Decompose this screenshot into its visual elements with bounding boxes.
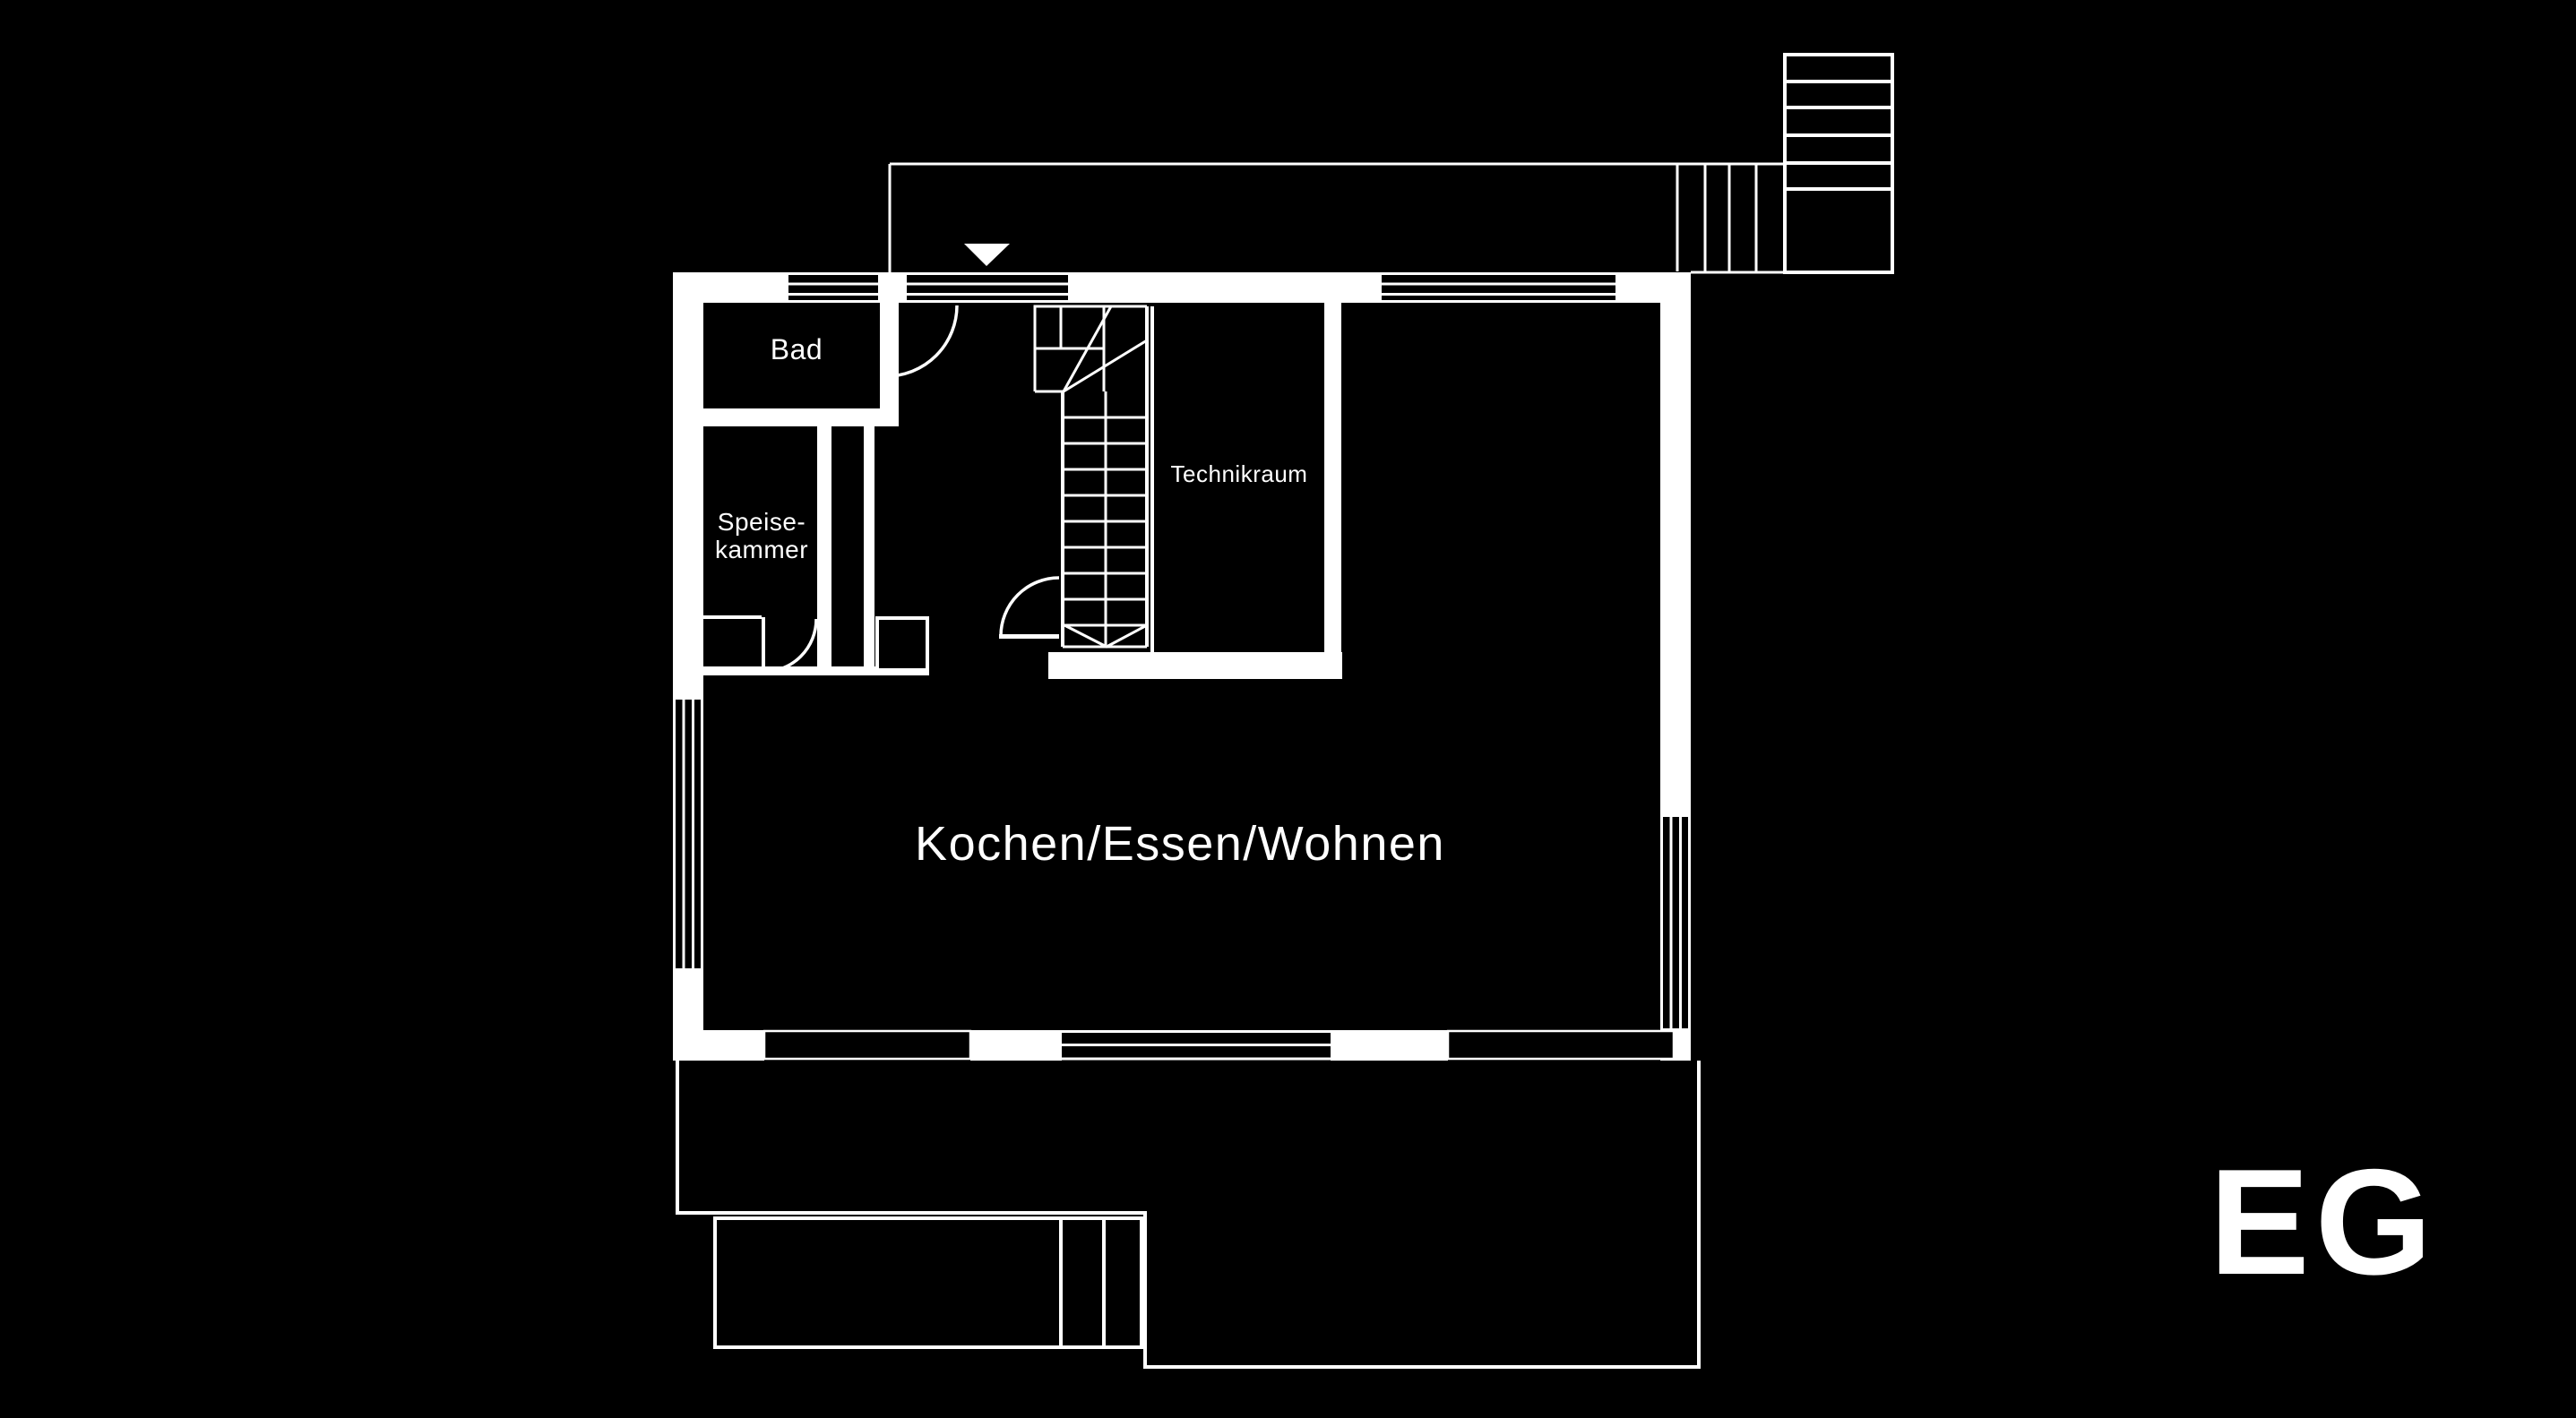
external-staircase [1785, 55, 1892, 272]
window-top-living [1382, 274, 1615, 302]
room-label-living: Kochen/Essen/Wohnen [866, 816, 1494, 872]
wall-pantry-right-b [864, 426, 874, 666]
window-top-entrance [907, 274, 1068, 302]
wall-top [1068, 272, 1382, 303]
terrace-platform [715, 1218, 1142, 1347]
terrace [677, 1061, 1699, 1367]
stair-door [999, 578, 1059, 639]
wall-right [1660, 272, 1691, 817]
wall-bottom [970, 1030, 1062, 1061]
entrance-arrow-icon [964, 244, 1010, 266]
walkway-steps [1677, 164, 1756, 271]
wall-top [878, 272, 907, 303]
wall-left [673, 272, 703, 700]
room-label-pantry-line2: kammer [672, 536, 851, 563]
wall-bad-bottom [703, 408, 899, 426]
room-label-pantry-line1: Speise- [672, 508, 851, 536]
duct-box [877, 618, 927, 670]
terrace-outline [677, 1061, 1699, 1367]
room-label-pantry: Speise- kammer [672, 508, 851, 563]
room-label-technikraum: Technikraum [1127, 460, 1351, 488]
window-right-wall [1662, 817, 1690, 1028]
window-left-wall [675, 700, 702, 968]
canopy [890, 164, 1892, 272]
room-label-bad: Bad [707, 333, 886, 366]
window-top-bad [788, 274, 878, 302]
wall-stair-foot [1048, 652, 1342, 679]
terrace-door-glazing [1062, 1032, 1331, 1060]
window-bottom-right [1448, 1031, 1674, 1059]
wall-bottom [673, 1030, 764, 1061]
floor-plan-page: Bad Speise- kammer Technikraum Kochen/Es… [0, 0, 2576, 1418]
pantry-door [703, 617, 816, 672]
wall-bottom [1674, 1030, 1691, 1061]
floor-title: EG [2175, 1147, 2471, 1297]
window-bottom-left [764, 1031, 970, 1059]
wall-bottom [1331, 1030, 1448, 1061]
